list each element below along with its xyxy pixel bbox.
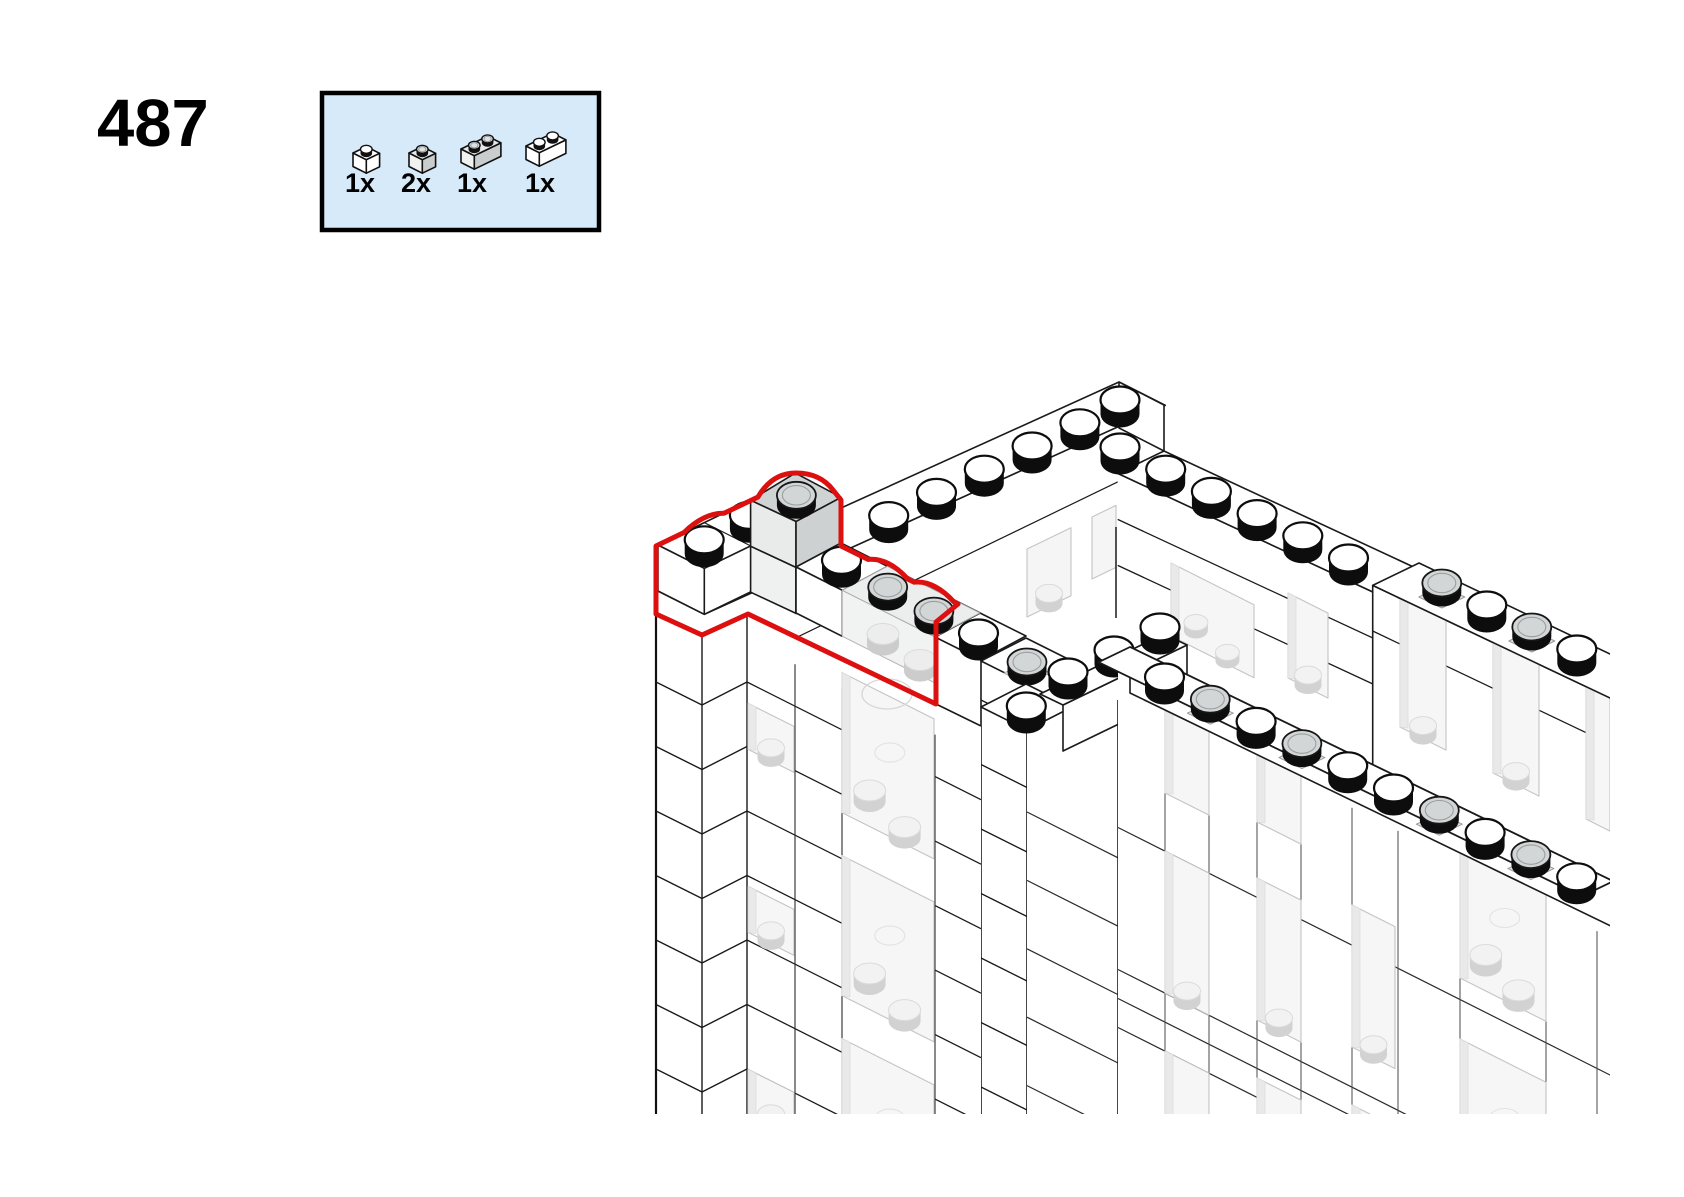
svg-text:2x: 2x (401, 168, 431, 198)
svg-text:1x: 1x (345, 168, 375, 198)
svg-text:1x: 1x (457, 168, 487, 198)
svg-text:1x: 1x (525, 168, 555, 198)
svg-text:487: 487 (97, 86, 209, 161)
